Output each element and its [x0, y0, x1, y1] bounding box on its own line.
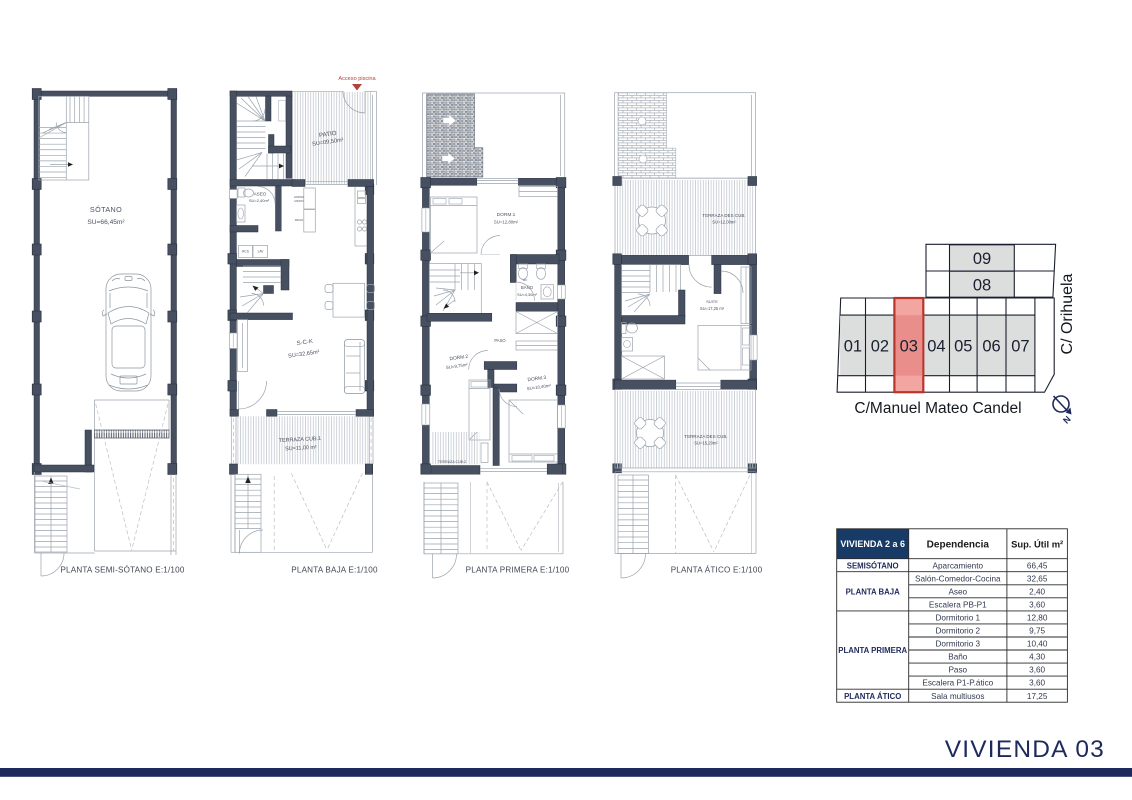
svg-text:SU=66,45m²: SU=66,45m² — [87, 219, 125, 226]
svg-text:Dormitorio 3: Dormitorio 3 — [936, 640, 981, 649]
svg-text:Paso: Paso — [948, 666, 967, 675]
svg-text:C/ Orihuela: C/ Orihuela — [1059, 273, 1076, 354]
svg-text:10,40: 10,40 — [1027, 640, 1048, 649]
svg-text:TERRAZA DES CUB.: TERRAZA DES CUB. — [684, 434, 727, 439]
svg-text:66,45: 66,45 — [1027, 561, 1048, 570]
svg-text:DORM.3: DORM.3 — [527, 375, 547, 384]
svg-text:SU=10,40m²: SU=10,40m² — [526, 383, 551, 391]
svg-text:SEMISÓTANO: SEMISÓTANO — [847, 561, 899, 570]
svg-text:4,30: 4,30 — [1029, 653, 1045, 662]
svg-text:VIVIENDA 03: VIVIENDA 03 — [945, 736, 1105, 763]
svg-text:Acceso piscina: Acceso piscina — [338, 76, 376, 82]
svg-text:Aseo: Aseo — [948, 587, 967, 596]
svg-text:08: 08 — [973, 277, 991, 295]
svg-text:DORM.2: DORM.2 — [449, 354, 469, 363]
svg-text:3,60: 3,60 — [1029, 601, 1045, 610]
svg-text:SU=9,75m²: SU=9,75m² — [446, 362, 469, 370]
svg-text:07: 07 — [1011, 338, 1029, 356]
svg-text:N: N — [1061, 414, 1073, 426]
svg-text:Sup. Útil m²: Sup. Útil m² — [1011, 539, 1063, 550]
svg-text:03: 03 — [900, 338, 918, 356]
svg-text:C/Manuel Mateo Candel: C/Manuel Mateo Candel — [854, 400, 1021, 417]
svg-text:PLANTA BAJA: PLANTA BAJA — [846, 588, 901, 597]
svg-text:SU=4,30m²: SU=4,30m² — [517, 292, 537, 297]
svg-text:01: 01 — [844, 338, 862, 356]
svg-text:FRIGO: FRIGO — [295, 218, 304, 222]
svg-text:HORNO: HORNO — [294, 195, 304, 199]
svg-text:Escalera PB-P1: Escalera PB-P1 — [929, 601, 987, 610]
svg-text:09: 09 — [973, 250, 991, 268]
svg-text:PASO: PASO — [494, 338, 506, 343]
svg-text:VIVIENDA 2 a 6: VIVIENDA 2 a 6 — [840, 539, 905, 549]
svg-text:RCS: RCS — [242, 250, 249, 254]
svg-text:WC: WC — [523, 278, 528, 282]
svg-text:Dormitorio 1: Dormitorio 1 — [936, 614, 981, 623]
svg-text:PLANTA ÁTICO: PLANTA ÁTICO — [844, 692, 901, 701]
svg-text:LAV: LAV — [258, 250, 265, 254]
svg-text:02: 02 — [871, 338, 889, 356]
svg-text:32,65: 32,65 — [1027, 574, 1048, 583]
svg-text:PLANTA SEMI-SÓTANO E:1/100: PLANTA SEMI-SÓTANO E:1/100 — [60, 566, 184, 575]
svg-text:Salón-Comedor-Cocina: Salón-Comedor-Cocina — [915, 574, 1001, 583]
svg-text:SU=17,25 m²: SU=17,25 m² — [700, 306, 725, 311]
svg-text:SU=12,80m²: SU=12,80m² — [494, 220, 519, 225]
svg-text:ASEO: ASEO — [254, 192, 267, 197]
svg-text:17,25: 17,25 — [1027, 692, 1048, 701]
svg-text:PLANTA ÁTICO E:1/100: PLANTA ÁTICO E:1/100 — [671, 566, 763, 575]
svg-text:06: 06 — [982, 338, 1000, 356]
svg-text:PLANTA PRIMERA E:1/100: PLANTA PRIMERA E:1/100 — [466, 566, 570, 575]
svg-text:SU=32,65m²: SU=32,65m² — [288, 349, 320, 359]
svg-text:PLANTA BAJA E:1/100: PLANTA BAJA E:1/100 — [291, 566, 378, 575]
svg-text:3,60: 3,60 — [1029, 666, 1045, 675]
svg-text:3,60: 3,60 — [1029, 679, 1045, 688]
svg-text:Aparcamiento: Aparcamiento — [933, 561, 984, 570]
svg-text:Dependencia: Dependencia — [927, 540, 990, 551]
svg-text:Dormitorio 2: Dormitorio 2 — [936, 627, 981, 636]
svg-text:04: 04 — [927, 338, 945, 356]
svg-text:DORM.1: DORM.1 — [497, 212, 516, 218]
svg-text:05: 05 — [954, 338, 972, 356]
svg-text:S-C-K: S-C-K — [296, 339, 313, 347]
svg-text:9,75: 9,75 — [1029, 627, 1045, 636]
svg-text:MICRO: MICRO — [295, 199, 304, 203]
svg-text:PLANTA PRIMERA: PLANTA PRIMERA — [838, 646, 907, 655]
svg-text:TERRAZA DES CUB.: TERRAZA DES CUB. — [702, 213, 745, 218]
svg-text:SUITE: SUITE — [706, 299, 718, 304]
svg-text:TERRAZA CUB.2: TERRAZA CUB.2 — [438, 460, 466, 464]
svg-text:Baño: Baño — [948, 653, 968, 662]
svg-text:2,40: 2,40 — [1029, 587, 1045, 596]
svg-text:Escalera P1-P.ático: Escalera P1-P.ático — [922, 679, 993, 688]
svg-text:SU=15,20m²: SU=15,20m² — [694, 441, 718, 446]
svg-text:SU=12,00m²: SU=12,00m² — [712, 220, 736, 225]
svg-text:12,80: 12,80 — [1027, 614, 1048, 623]
svg-text:SU=2,40m²: SU=2,40m² — [249, 198, 270, 203]
svg-text:SÓTANO: SÓTANO — [90, 205, 122, 214]
svg-text:Sala multiusos: Sala multiusos — [931, 692, 984, 701]
